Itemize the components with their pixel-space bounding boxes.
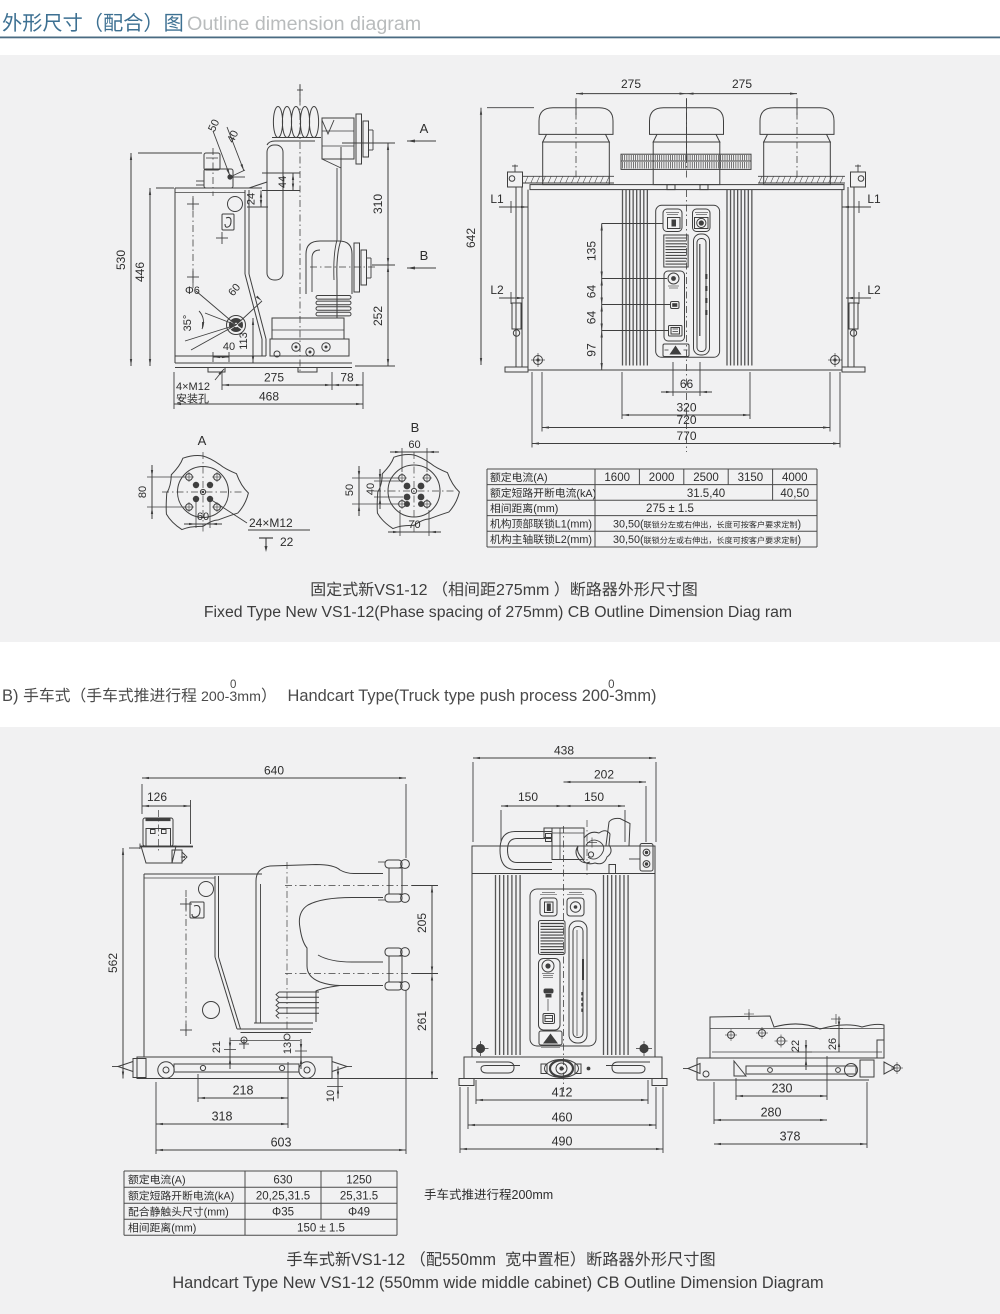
svg-text:21: 21 [211,1041,223,1053]
svg-text:Outline dimension diagram: Outline dimension diagram [187,13,421,35]
svg-text:60: 60 [197,511,209,523]
svg-text:40,50: 40,50 [780,488,809,500]
svg-text:205: 205 [415,913,429,933]
svg-text:280: 280 [761,1106,782,1120]
svg-text:(kA): (kA) [576,488,596,500]
svg-text:640: 640 [264,764,284,778]
svg-text:530: 530 [114,250,128,270]
svg-text:1250: 1250 [346,1174,372,1186]
svg-text:30,50(: 30,50( [613,519,644,531]
svg-text:(mm): (mm) [171,1223,196,1235]
svg-text:22: 22 [790,1040,802,1052]
svg-text:25,31.5: 25,31.5 [340,1191,378,1203]
svg-text:310: 310 [371,194,385,214]
svg-text:150: 150 [518,790,538,804]
svg-text:230: 230 [772,1082,793,1096]
svg-text:218: 218 [233,1084,254,1098]
svg-text:460: 460 [552,1111,573,1125]
svg-text:378: 378 [780,1130,801,1144]
svg-text:4000: 4000 [782,472,808,484]
svg-text:40: 40 [365,483,377,495]
svg-text:Handcart Type(Truck type push: Handcart Type(Truck type push process 20… [288,687,657,705]
svg-text:2500: 2500 [693,472,719,484]
svg-text:70: 70 [408,519,420,531]
svg-text:20,25,31.5: 20,25,31.5 [256,1191,310,1203]
svg-text:318: 318 [212,1110,233,1124]
svg-text:L2: L2 [490,283,504,297]
svg-text:L2(mm): L2(mm) [555,534,592,546]
svg-text:10: 10 [325,1090,337,1102]
svg-text:): ) [797,534,801,546]
svg-text:1600: 1600 [604,472,630,484]
svg-text:0: 0 [608,679,614,691]
svg-text:13: 13 [282,1042,294,1054]
svg-text:4×M12: 4×M12 [176,381,210,393]
svg-text:B): B) [2,687,19,705]
svg-text:3150: 3150 [738,472,764,484]
svg-text:): ) [797,519,801,531]
svg-text:60: 60 [408,439,420,451]
svg-text:275: 275 [732,77,752,91]
svg-text:L2: L2 [867,283,881,297]
svg-text:0: 0 [230,679,236,691]
svg-text:Φ6: Φ6 [185,285,200,297]
svg-text:603: 603 [271,1136,292,1150]
svg-text:(mm): (mm) [533,503,558,515]
svg-text:446: 446 [133,262,147,282]
svg-text:L1(mm): L1(mm) [555,519,592,531]
svg-text:468: 468 [259,390,279,404]
svg-text:200mm: 200mm [512,1188,554,1202]
svg-text:202: 202 [594,768,614,782]
svg-text:438: 438 [554,744,574,758]
svg-text:275: 275 [264,371,284,385]
svg-text:80: 80 [137,486,149,498]
svg-text:135: 135 [585,241,599,261]
svg-text:24: 24 [246,193,258,205]
svg-text:126: 126 [147,790,167,804]
svg-text:150: 150 [584,790,604,804]
svg-text:31.5,40: 31.5,40 [687,488,725,500]
svg-text:(A): (A) [533,472,547,484]
svg-text:720: 720 [676,413,696,427]
svg-text:78: 78 [340,371,354,385]
svg-text:275: 275 [621,77,641,91]
svg-text:26: 26 [827,1038,839,1050]
svg-text:200-3mm: 200-3mm [201,689,261,705]
svg-text:150 ± 1.5: 150 ± 1.5 [297,1223,345,1235]
svg-text:30,50(: 30,50( [613,534,644,546]
svg-text:Handcart Type New VS1-12 (550m: Handcart Type New VS1-12 (550mm wide mid… [172,1274,823,1292]
svg-text:412: 412 [552,1086,573,1100]
svg-text:(A): (A) [171,1174,185,1186]
svg-text:(mm): (mm) [204,1207,229,1219]
svg-text:562: 562 [106,953,120,973]
svg-text:Φ35: Φ35 [272,1207,294,1219]
svg-text:630: 630 [273,1174,292,1186]
svg-text:B: B [420,248,429,263]
svg-text:(kA): (kA) [214,1191,234,1203]
svg-text:252: 252 [371,306,385,326]
svg-text:113: 113 [238,332,250,350]
svg-text:A: A [198,433,207,448]
svg-text:24×M12: 24×M12 [249,516,293,530]
svg-text:642: 642 [464,228,478,248]
svg-text:35°: 35° [182,315,194,332]
svg-text:50: 50 [344,484,356,496]
svg-text:275 ± 1.5: 275 ± 1.5 [646,503,694,515]
svg-text:66: 66 [680,377,694,391]
svg-text:22: 22 [280,535,294,549]
svg-text:490: 490 [552,1135,573,1149]
svg-text:Φ49: Φ49 [348,1207,370,1219]
svg-text:97: 97 [585,343,599,357]
svg-text:64: 64 [585,285,599,299]
svg-text:L1: L1 [490,192,504,206]
svg-text:VS1-12: VS1-12 [374,582,427,599]
svg-text:275mm: 275mm [496,582,549,599]
svg-text:40: 40 [223,341,235,353]
svg-text:Fixed Type New VS1-12(Phase sp: Fixed Type New VS1-12(Phase spacing of 2… [204,604,792,621]
svg-text:VS1-12: VS1-12 [351,1251,405,1269]
svg-text:261: 261 [415,1011,429,1031]
svg-text:64: 64 [585,311,599,325]
svg-text:B: B [411,420,420,435]
svg-text:A: A [420,121,429,136]
svg-text:770: 770 [676,429,696,443]
svg-text:L1: L1 [867,192,881,206]
svg-text:550mm: 550mm [442,1251,496,1269]
svg-text:2000: 2000 [649,472,675,484]
